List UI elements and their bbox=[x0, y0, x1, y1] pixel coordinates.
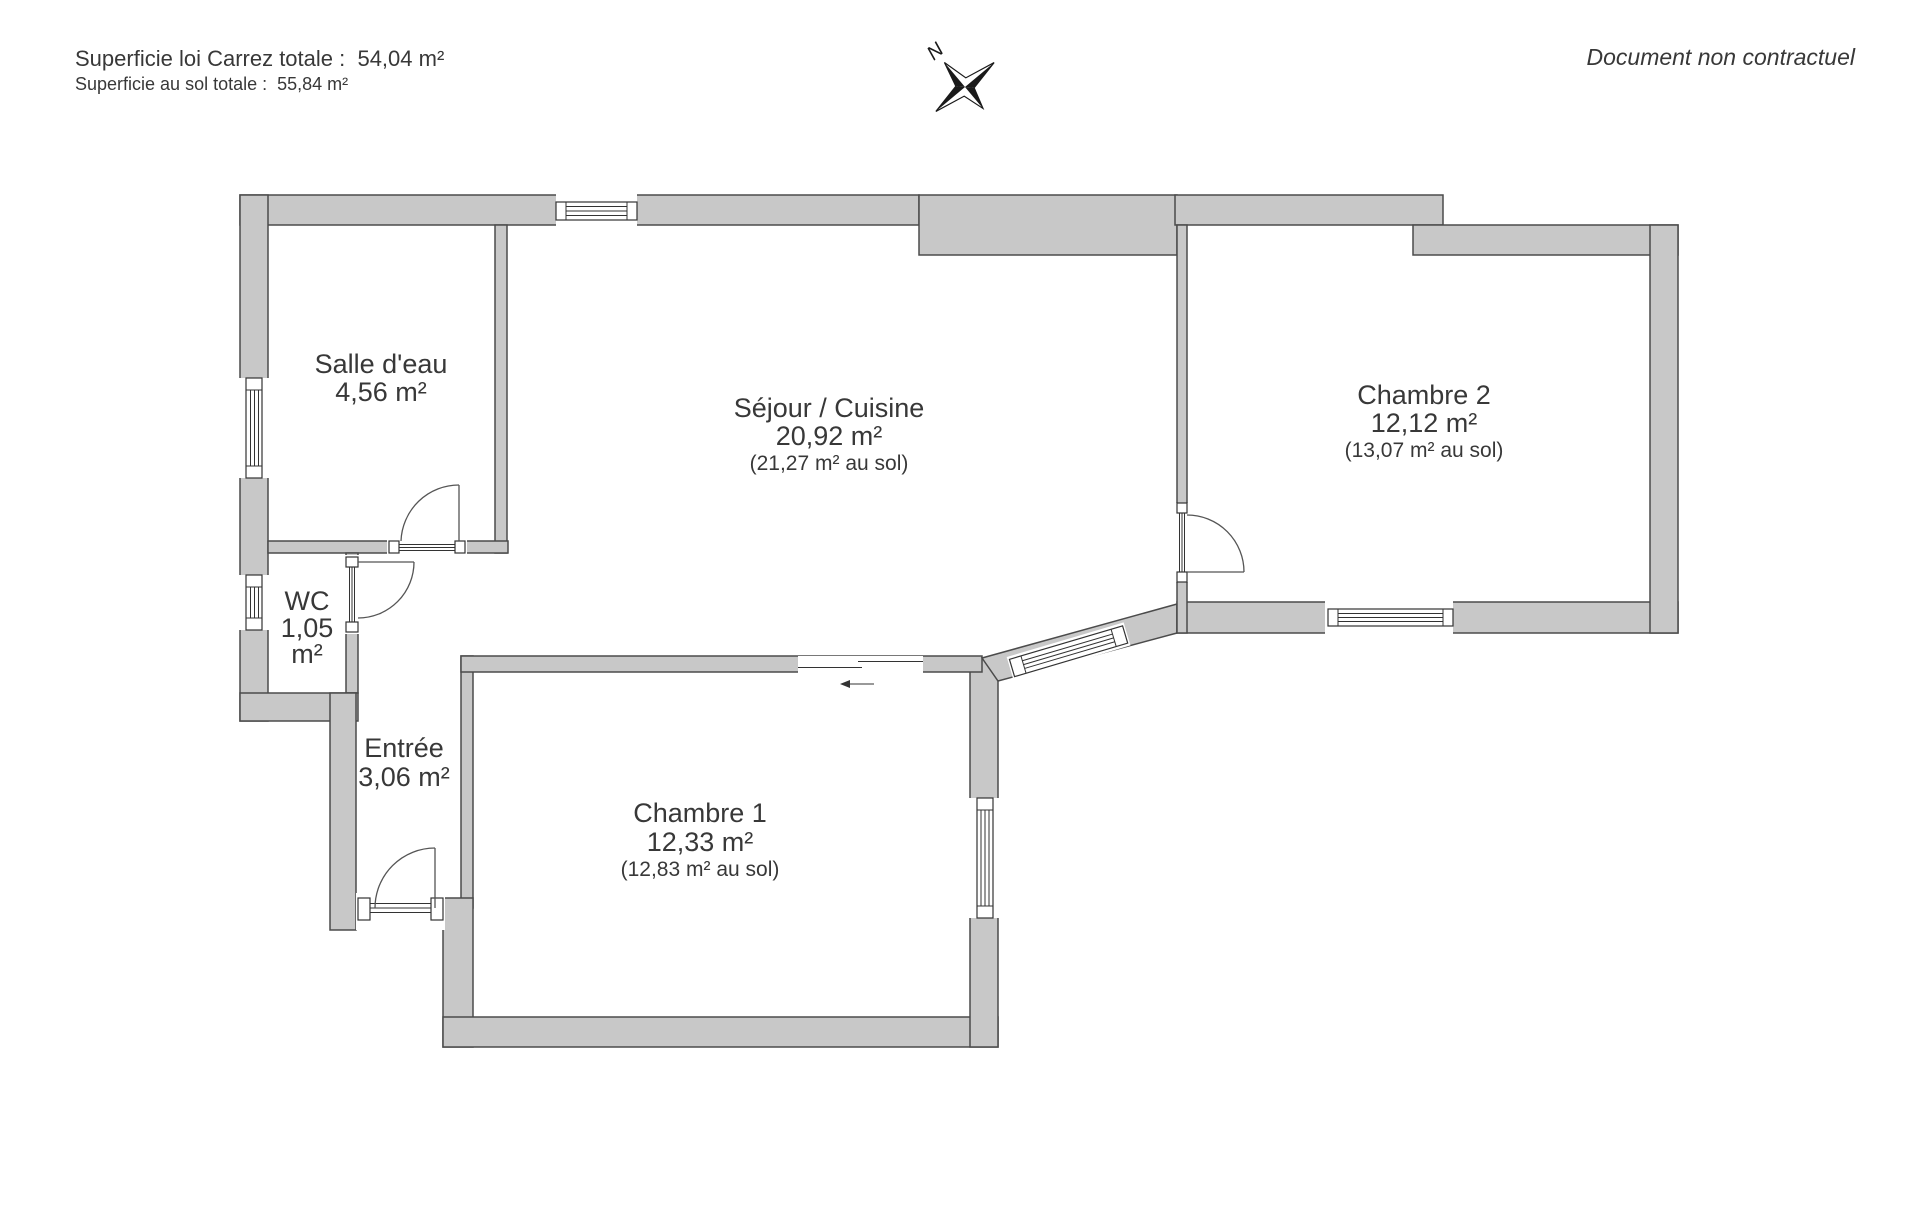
door-wc bbox=[344, 555, 414, 634]
label-chambre2: Chambre 2 12,12 m² (13,07 m² au sol) bbox=[1345, 380, 1504, 462]
room-area-unit-wc: m² bbox=[291, 639, 322, 669]
room-name-wc: WC bbox=[285, 586, 330, 616]
wall-top-right-step bbox=[1413, 225, 1678, 255]
window-chambre1-right bbox=[968, 798, 1000, 918]
room-area-chambre2: 12,12 m² bbox=[1371, 408, 1478, 438]
door-salledeau bbox=[387, 485, 467, 555]
wall-entree-chambre1 bbox=[461, 656, 473, 908]
compass-rose-icon: N bbox=[899, 19, 1012, 133]
window-sejour-top bbox=[556, 193, 637, 227]
wall-entree-left bbox=[330, 693, 356, 930]
wall-top-notch bbox=[919, 195, 1177, 255]
door-entrance bbox=[356, 848, 445, 930]
door-chambre1-sliding bbox=[798, 656, 923, 688]
room-name-sejour: Séjour / Cuisine bbox=[734, 393, 925, 423]
room-name-entree: Entrée bbox=[364, 733, 444, 763]
door-chambre2 bbox=[1175, 503, 1244, 582]
window-salledeau-left bbox=[238, 378, 270, 478]
room-name-salle-deau: Salle d'eau bbox=[315, 349, 448, 379]
label-entree: Entrée 3,06 m² bbox=[358, 733, 450, 792]
label-chambre1: Chambre 1 12,33 m² (12,83 m² au sol) bbox=[621, 798, 780, 881]
label-wc: WC 1,05 m² bbox=[281, 586, 334, 669]
wall-chambre2-right bbox=[1650, 225, 1678, 633]
wall-chambre1-bottom bbox=[443, 1017, 998, 1047]
wall-salledeau-sejour bbox=[495, 225, 507, 553]
wall-top-chambre2 bbox=[1175, 195, 1443, 225]
compass-north-label: N bbox=[923, 38, 949, 64]
label-salle-deau: Salle d'eau 4,56 m² bbox=[315, 349, 448, 407]
room-name-chambre1: Chambre 1 bbox=[633, 798, 767, 828]
sliding-direction-arrow-icon bbox=[840, 680, 850, 688]
room-floorarea-chambre1: (12,83 m² au sol) bbox=[621, 858, 780, 881]
walls bbox=[240, 195, 1678, 1047]
room-name-chambre2: Chambre 2 bbox=[1357, 380, 1491, 410]
window-chambre2-bottom bbox=[1325, 600, 1453, 635]
room-area-salle-deau: 4,56 m² bbox=[335, 377, 427, 407]
room-area-sejour: 20,92 m² bbox=[776, 421, 883, 451]
room-floorarea-chambre2: (13,07 m² au sol) bbox=[1345, 439, 1504, 462]
floorplan-page: Superficie loi Carrez totale : 54,04 m² … bbox=[0, 0, 1920, 1206]
room-floorarea-sejour: (21,27 m² au sol) bbox=[750, 452, 909, 475]
floorplan-drawing: N Salle d'eau 4,56 m² Séjour / Cuisine 2… bbox=[0, 0, 1920, 1206]
window-wc-left bbox=[238, 575, 270, 630]
label-sejour: Séjour / Cuisine 20,92 m² (21,27 m² au s… bbox=[734, 393, 925, 475]
room-area-chambre1: 12,33 m² bbox=[647, 827, 754, 857]
room-area-entree: 3,06 m² bbox=[358, 762, 450, 792]
